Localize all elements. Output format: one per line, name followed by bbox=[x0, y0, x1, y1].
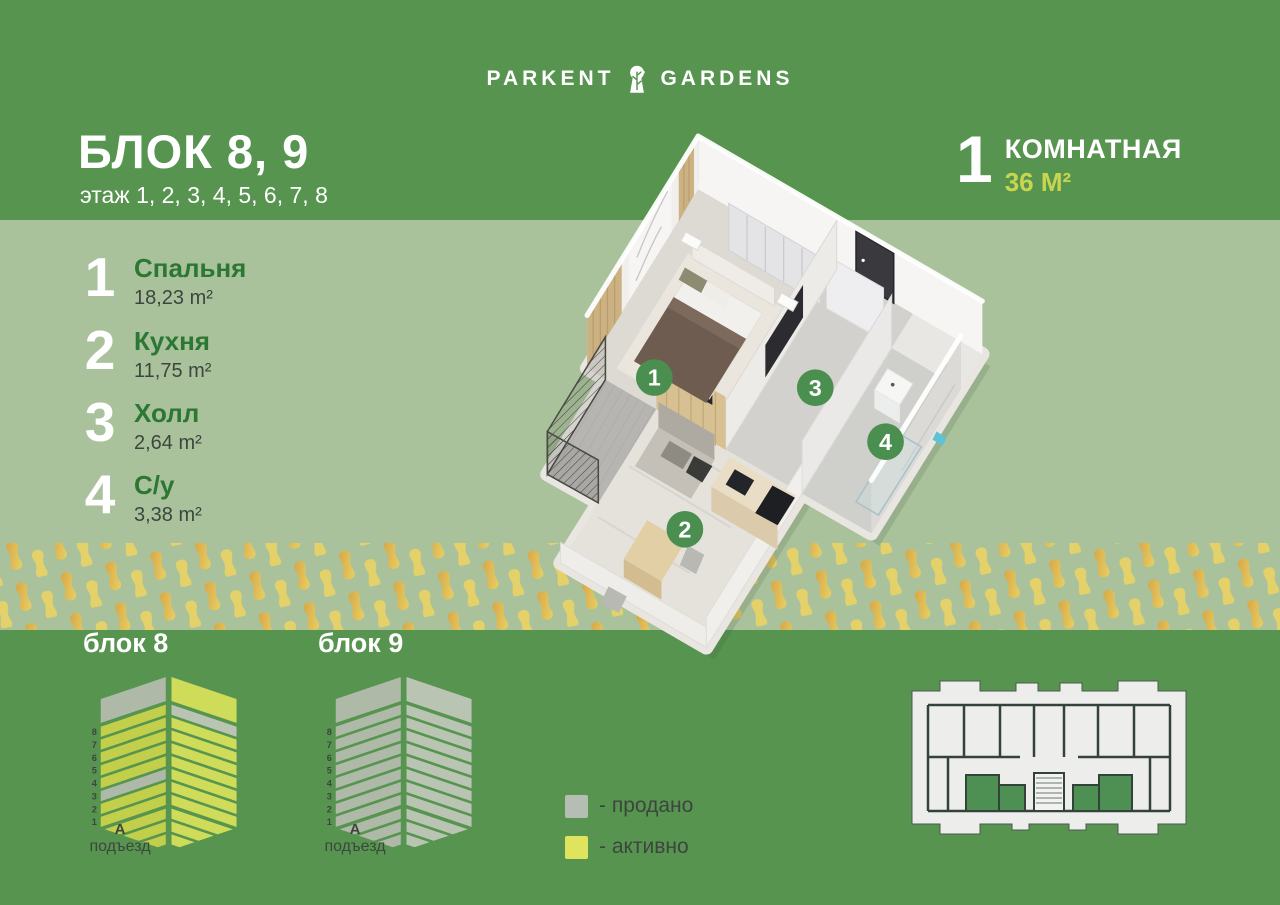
room-name: Спальня bbox=[134, 253, 246, 284]
room-list-item: 2 Кухня 11,75 m² bbox=[78, 326, 211, 383]
room-area: 3,38 m² bbox=[134, 504, 202, 527]
apartment-3d-plan: 1 2 3 4 bbox=[476, 130, 1016, 675]
badge-kitchen: 2 bbox=[667, 511, 704, 548]
brand-logo: PARKENT GARDENS bbox=[0, 64, 1280, 94]
room-number: 4 bbox=[78, 470, 122, 527]
room-area: 2,64 m² bbox=[134, 432, 202, 455]
svg-text:5: 5 bbox=[327, 766, 332, 776]
svg-text:3: 3 bbox=[809, 375, 822, 401]
entrance-word: подъезд bbox=[84, 837, 156, 856]
status-legend: - продано - активно bbox=[565, 794, 693, 876]
brand-name-right: GARDENS bbox=[660, 67, 793, 91]
badge-bedroom: 1 bbox=[636, 359, 673, 396]
legend-row-active: - активно bbox=[565, 835, 693, 859]
staircase bbox=[1034, 773, 1064, 811]
brand-icon bbox=[626, 64, 648, 94]
floors-line: этаж 1, 2, 3, 4, 5, 6, 7, 8 bbox=[80, 182, 328, 209]
legend-row-sold: - продано bbox=[565, 794, 693, 818]
svg-text:5: 5 bbox=[92, 766, 97, 776]
room-area: 18,23 m² bbox=[134, 287, 246, 310]
room-area: 11,75 m² bbox=[134, 360, 211, 383]
active-swatch bbox=[565, 836, 588, 859]
block-8-label: блок 8 bbox=[83, 628, 168, 659]
sold-swatch bbox=[565, 795, 588, 818]
block-9-entrance: А подъезд bbox=[319, 822, 391, 856]
svg-text:6: 6 bbox=[327, 753, 332, 763]
svg-text:8: 8 bbox=[92, 727, 97, 737]
room-list-item: 3 Холл 2,64 m² bbox=[78, 398, 202, 455]
badge-bathroom: 4 bbox=[867, 423, 904, 460]
entrance-word: подъезд bbox=[319, 837, 391, 856]
svg-text:7: 7 bbox=[327, 740, 332, 750]
room-number: 2 bbox=[78, 326, 122, 383]
room-number: 3 bbox=[78, 398, 122, 455]
svg-text:7: 7 bbox=[92, 740, 97, 750]
entrance-letter: А bbox=[319, 822, 391, 837]
block-title: БЛОК 8, 9 bbox=[78, 124, 309, 179]
svg-text:3: 3 bbox=[92, 791, 97, 801]
entrance-letter: А bbox=[84, 822, 156, 837]
svg-text:2: 2 bbox=[678, 516, 691, 542]
svg-text:3: 3 bbox=[327, 791, 332, 801]
building-floor-plan bbox=[888, 661, 1210, 848]
rooms-label: КОМНАТНАЯ bbox=[1005, 134, 1182, 164]
svg-text:4: 4 bbox=[327, 779, 333, 789]
unit-area: 36 М² bbox=[1005, 167, 1182, 198]
room-number: 1 bbox=[78, 253, 122, 310]
room-name: Холл bbox=[134, 398, 202, 429]
badge-hall: 3 bbox=[797, 369, 834, 406]
room-list-item: 1 Спальня 18,23 m² bbox=[78, 253, 246, 310]
svg-text:2: 2 bbox=[327, 804, 332, 814]
room-name: С/у bbox=[134, 470, 202, 501]
svg-text:6: 6 bbox=[92, 753, 97, 763]
block-9-label: блок 9 bbox=[318, 628, 403, 659]
brand-name-left: PARKENT bbox=[487, 67, 615, 91]
svg-text:4: 4 bbox=[879, 429, 892, 455]
room-list-item: 4 С/у 3,38 m² bbox=[78, 470, 202, 527]
room-name: Кухня bbox=[134, 326, 211, 357]
active-label: - активно bbox=[599, 835, 689, 859]
svg-text:4: 4 bbox=[92, 779, 98, 789]
svg-text:1: 1 bbox=[648, 365, 661, 391]
poster: PARKENT GARDENS БЛОК 8, 9 этаж 1, 2, 3, … bbox=[0, 0, 1280, 905]
sold-label: - продано bbox=[599, 794, 693, 818]
svg-text:8: 8 bbox=[327, 727, 332, 737]
svg-text:2: 2 bbox=[92, 804, 97, 814]
block-8-entrance: А подъезд bbox=[84, 822, 156, 856]
